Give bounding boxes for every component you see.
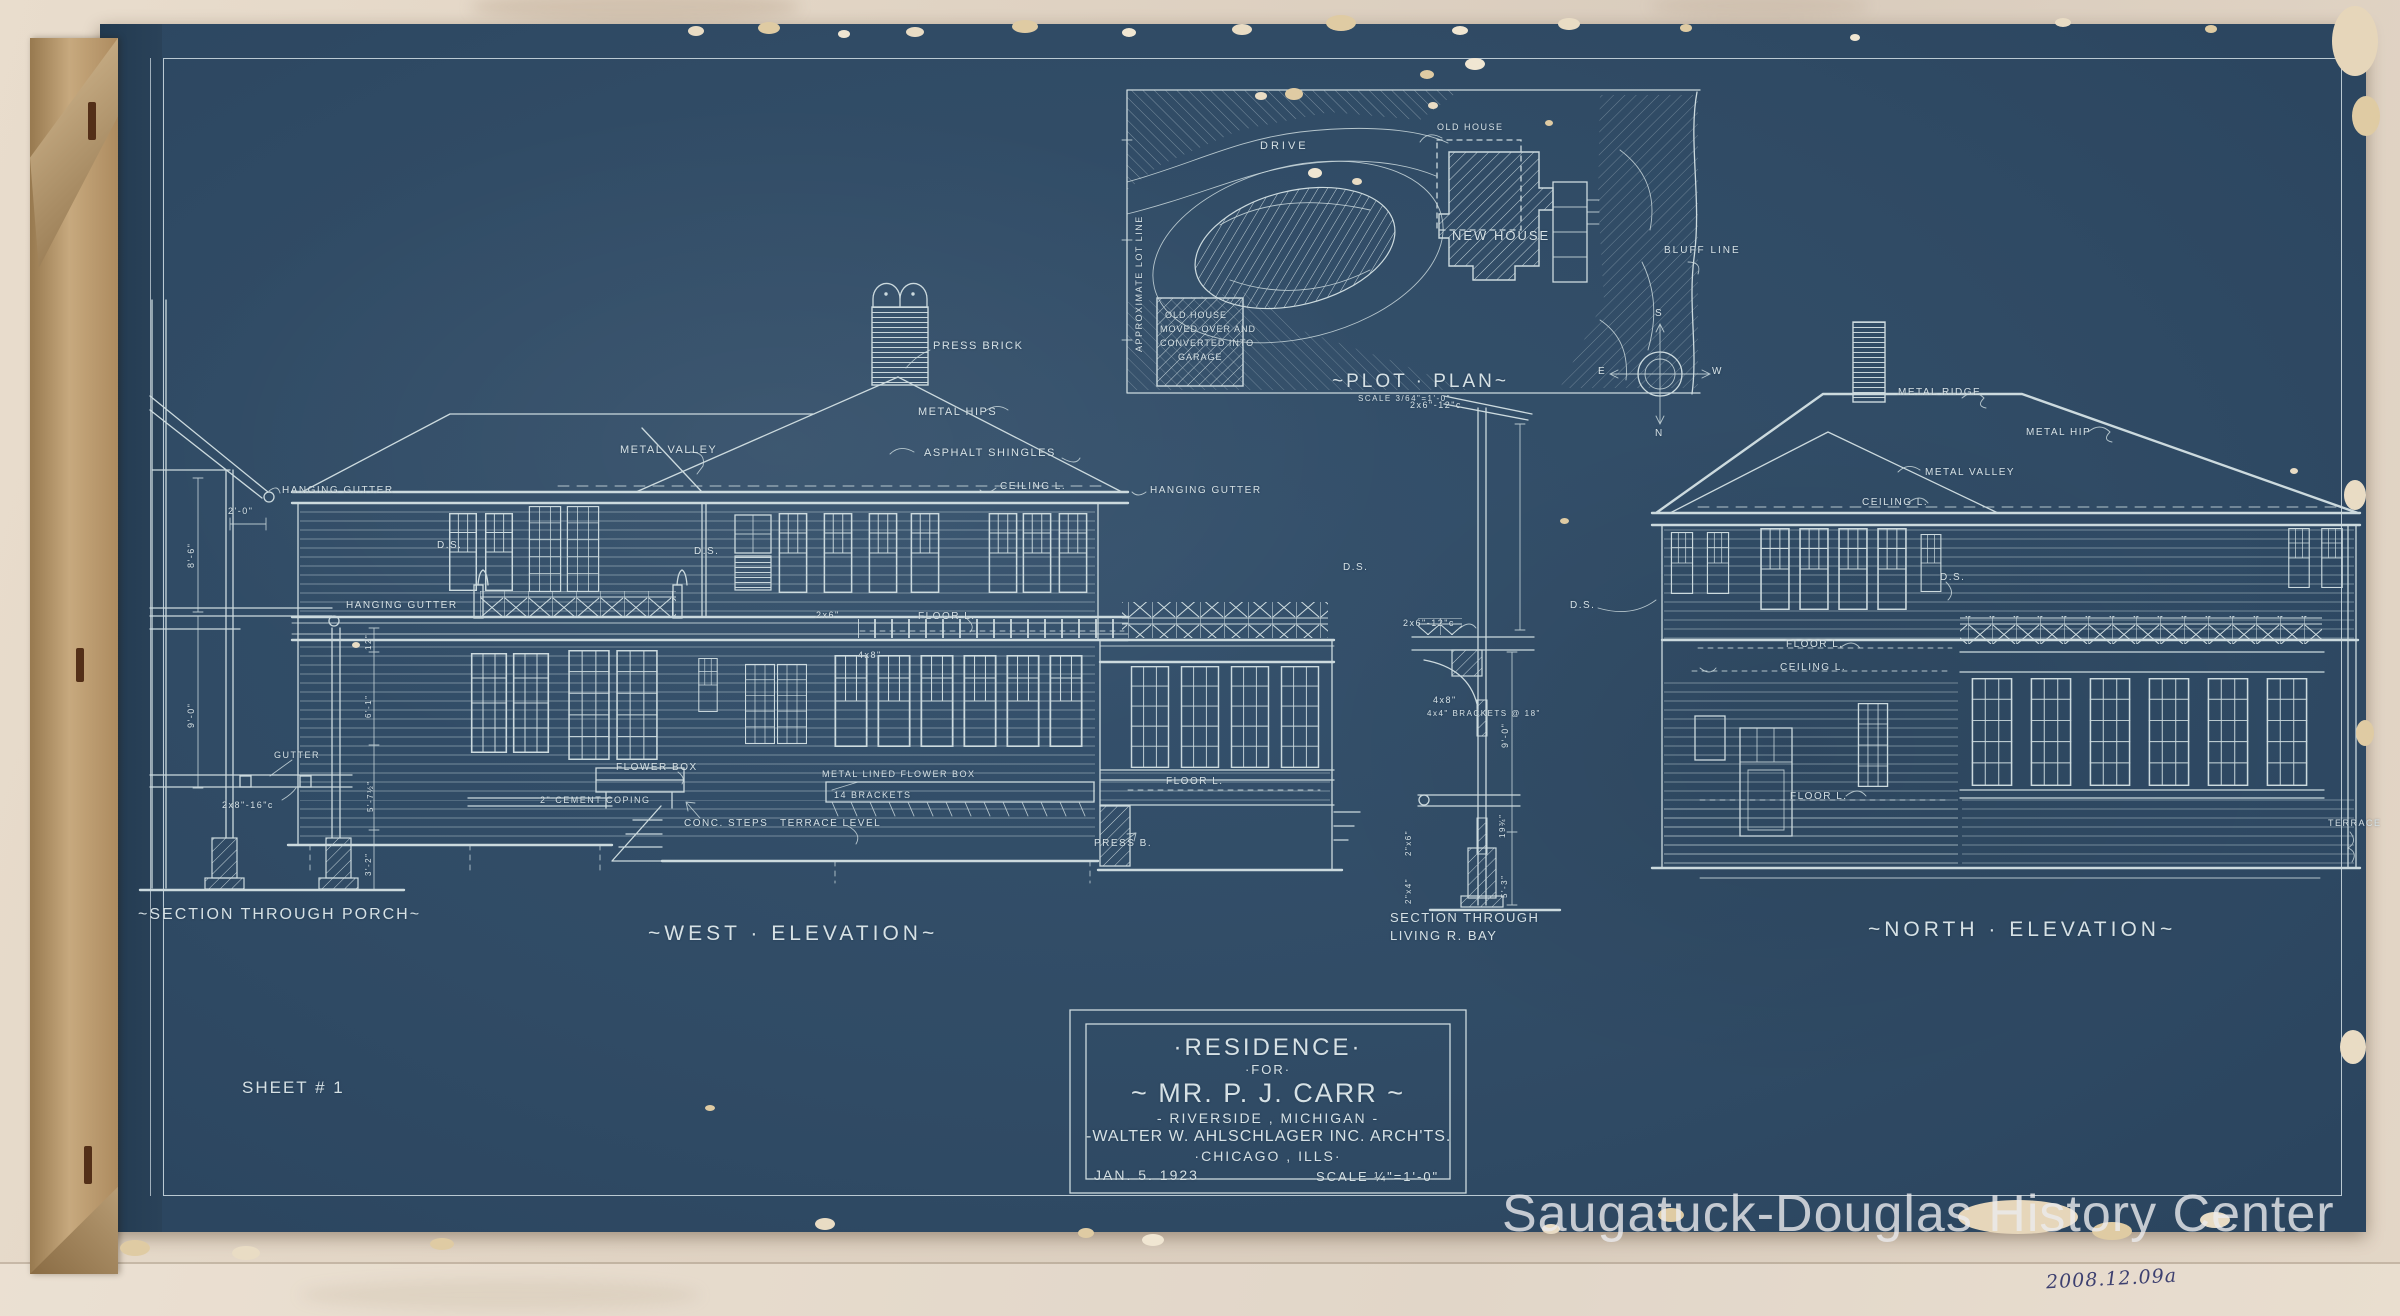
paper-damage xyxy=(1285,88,1303,100)
dim-12: 12" xyxy=(364,634,373,650)
label-rafters-upper: 2x6"-12"c xyxy=(1410,400,1462,410)
caption-section-porch: ~SECTION THROUGH PORCH~ xyxy=(138,906,421,924)
label-metal-ridge: METAL RIDGE xyxy=(1898,387,1981,398)
caption-west-elevation: ~WEST · ELEVATION~ xyxy=(648,922,938,946)
label-joist-2x6: 2x6" xyxy=(816,610,840,620)
label-ds-3: D.S. xyxy=(1343,562,1368,573)
paper-damage xyxy=(120,1240,150,1256)
label-hanging-gutter-porch: HANGING GUTTER xyxy=(282,485,394,496)
label-press-b: PRESS B. xyxy=(1094,838,1152,849)
label-stud2: 2"x4" xyxy=(1404,878,1413,904)
paper-damage xyxy=(1850,34,1860,41)
paper-damage xyxy=(1352,178,1362,185)
label-brackets-bay: 4x4" BRACKETS @ 18" xyxy=(1427,709,1541,718)
paper-damage xyxy=(1545,120,1553,126)
label-metal-hip: METAL HIP xyxy=(2026,427,2091,438)
paper-damage xyxy=(2340,1030,2366,1064)
dim-5-3: 5'-3" xyxy=(1500,875,1509,898)
border-frame xyxy=(163,58,2342,1196)
paper-damage xyxy=(1308,168,1322,178)
label-floor-l-2: FLOOR L. xyxy=(1166,776,1224,787)
title-scale: SCALE ¼"=1'-0" xyxy=(1316,1169,1439,1184)
dim-5-7: 5'-7½" xyxy=(366,780,375,812)
title-location: - RIVERSIDE , MICHIGAN - xyxy=(1086,1110,1450,1126)
border-frame-inner-line xyxy=(150,58,151,1196)
plot-plan-title: ~PLOT · PLAN~ xyxy=(1332,371,1509,393)
paper-damage xyxy=(1452,26,1468,35)
mat-stain xyxy=(1650,0,1870,18)
sheet-number: SHEET # 1 xyxy=(242,1078,345,1098)
label-conc-steps: CONC. STEPS xyxy=(684,818,768,829)
compass-w: W xyxy=(1712,366,1723,377)
label-ceiling-l-north: CEILING L. xyxy=(1862,497,1928,508)
caption-north-elevation: ~NORTH · ELEVATION~ xyxy=(1868,918,2176,942)
paper-damage xyxy=(2332,6,2378,76)
paper-damage xyxy=(232,1246,260,1260)
label-lot-line: APPROXIMATE LOT LINE xyxy=(1134,215,1144,352)
title-for: ·FOR· xyxy=(1086,1062,1450,1077)
mat-stain xyxy=(470,0,800,22)
label-bluff-line: BLUFF LINE xyxy=(1664,245,1741,256)
paper-damage xyxy=(2205,25,2217,33)
label-terrace-level: TERRACE LEVEL xyxy=(780,818,881,829)
dim-6-1: 6'-1" xyxy=(364,695,373,718)
dim-8-6: 8'-6" xyxy=(186,543,196,568)
paper-damage xyxy=(2055,18,2071,27)
paper-damage xyxy=(1420,70,1434,79)
paper-damage xyxy=(906,27,924,37)
label-new-house: NEW HOUSE xyxy=(1452,228,1550,243)
dim-19: 19¾" xyxy=(1498,814,1507,838)
dim-9-0-porch: 9'-0" xyxy=(186,703,196,728)
paper-damage xyxy=(1255,92,1267,100)
paper-damage xyxy=(838,30,850,38)
label-ceiling-l2-north: CEILING L. xyxy=(1780,662,1846,673)
staple xyxy=(76,648,84,682)
label-rafters: 2x6"-12"c xyxy=(1403,618,1455,628)
paper-damage xyxy=(688,26,704,36)
label-metal-valley-north: METAL VALLEY xyxy=(1925,467,2015,478)
paper-damage xyxy=(1078,1228,1094,1238)
label-garage-note-4: GARAGE xyxy=(1178,352,1223,362)
caption-section-bay-1: SECTION THROUGH xyxy=(1390,910,1539,925)
title-residence: ·RESIDENCE· xyxy=(1086,1034,1450,1062)
dim-9-0-bay: 9'-0" xyxy=(1500,723,1510,748)
label-14-brackets: 14 BRACKETS xyxy=(834,790,912,800)
compass-e: E xyxy=(1598,366,1606,377)
title-client: ~ MR. P. J. CARR ~ xyxy=(1086,1078,1450,1109)
paper-damage xyxy=(430,1238,454,1250)
paper-damage xyxy=(2356,720,2374,746)
label-metal-valley: METAL VALLEY xyxy=(620,444,717,456)
label-ds-north-2: D.S. xyxy=(1940,572,1965,583)
label-press-brick: PRESS BRICK xyxy=(933,340,1023,352)
paper-damage xyxy=(1428,102,1438,109)
label-beam-4x8: 4x8" xyxy=(858,650,882,660)
paper-damage xyxy=(1465,58,1485,70)
compass-n: N xyxy=(1655,428,1664,439)
label-garage-note-2: MOVED OVER AND xyxy=(1160,324,1256,334)
label-metal-lined-flower-box: METAL LINED FLOWER BOX xyxy=(822,769,976,779)
staple xyxy=(88,102,96,140)
paper-damage xyxy=(1232,24,1252,35)
paper-damage xyxy=(352,642,360,648)
label-hanging-gutter: HANGING GUTTER xyxy=(1150,485,1262,496)
label-garage-note-3: CONVERTED INTO xyxy=(1160,338,1254,348)
label-cement-coping: 2" CEMENT COPING xyxy=(540,795,651,805)
label-stud1: 2"x6" xyxy=(1404,830,1413,856)
dim-3-2: 3'-2" xyxy=(364,853,373,876)
watermark: Saugatuck-Douglas History Center xyxy=(1502,1184,2335,1244)
label-ceiling-l: CEILING L. xyxy=(1000,481,1066,492)
paper-damage xyxy=(1326,15,1356,31)
title-city: ·CHICAGO , ILLS· xyxy=(1086,1148,1450,1164)
label-floor-l-north: FLOOR L. xyxy=(1786,639,1844,650)
label-ds: D.S. xyxy=(437,540,462,551)
label-ds-2: D.S. xyxy=(694,546,719,557)
paper-damage xyxy=(815,1218,835,1230)
title-architect: -WALTER W. AHLSCHLAGER INC. ARCH'TS. xyxy=(1086,1128,1450,1146)
label-drive: DRIVE xyxy=(1260,140,1309,152)
photo-of-blueprint: PRESS BRICK METAL HIPS METAL VALLEY ASPH… xyxy=(0,0,2400,1316)
paper-damage xyxy=(758,22,780,34)
label-joists-2x8: 2x8"-16"c xyxy=(222,800,274,810)
caption-section-bay-2: LIVING R. BAY xyxy=(1390,928,1497,943)
paper-damage xyxy=(1122,28,1136,37)
paper-damage xyxy=(2352,96,2380,136)
label-beam-bay: 4x8" xyxy=(1433,695,1457,705)
title-date: JAN. 5. 1923 xyxy=(1094,1167,1199,1183)
mat-lower-band xyxy=(0,1264,2400,1316)
label-garage-note-1: OLD HOUSE xyxy=(1165,310,1227,320)
paper-damage xyxy=(1012,20,1038,33)
dim-2-0: 2'-0" xyxy=(228,506,253,516)
paper-damage xyxy=(2344,480,2366,510)
paper-damage xyxy=(1558,18,1580,30)
label-floor-l: FLOOR L. xyxy=(918,611,976,622)
staple xyxy=(84,1146,92,1184)
label-flower-box: FLOWER BOX xyxy=(616,762,698,773)
paper-damage xyxy=(705,1105,715,1111)
paper-damage xyxy=(1560,518,1569,524)
label-terrace: TERRACE xyxy=(2328,818,2382,828)
paper-damage xyxy=(1680,24,1692,32)
label-metal-hips: METAL HIPS xyxy=(918,406,997,418)
label-asphalt-shingles: ASPHALT SHINGLES xyxy=(924,447,1056,459)
compass-s: S xyxy=(1655,308,1663,319)
label-old-house: OLD HOUSE xyxy=(1437,122,1504,132)
label-hanging-gutter-porch-2: HANGING GUTTER xyxy=(346,600,458,611)
label-gutter: GUTTER xyxy=(274,750,320,760)
paper-damage xyxy=(2290,468,2298,474)
paper-damage xyxy=(1142,1234,1164,1246)
label-floor-l2-north: FLOOR L. xyxy=(1790,791,1848,802)
label-ds-north: D.S. xyxy=(1570,600,1595,611)
